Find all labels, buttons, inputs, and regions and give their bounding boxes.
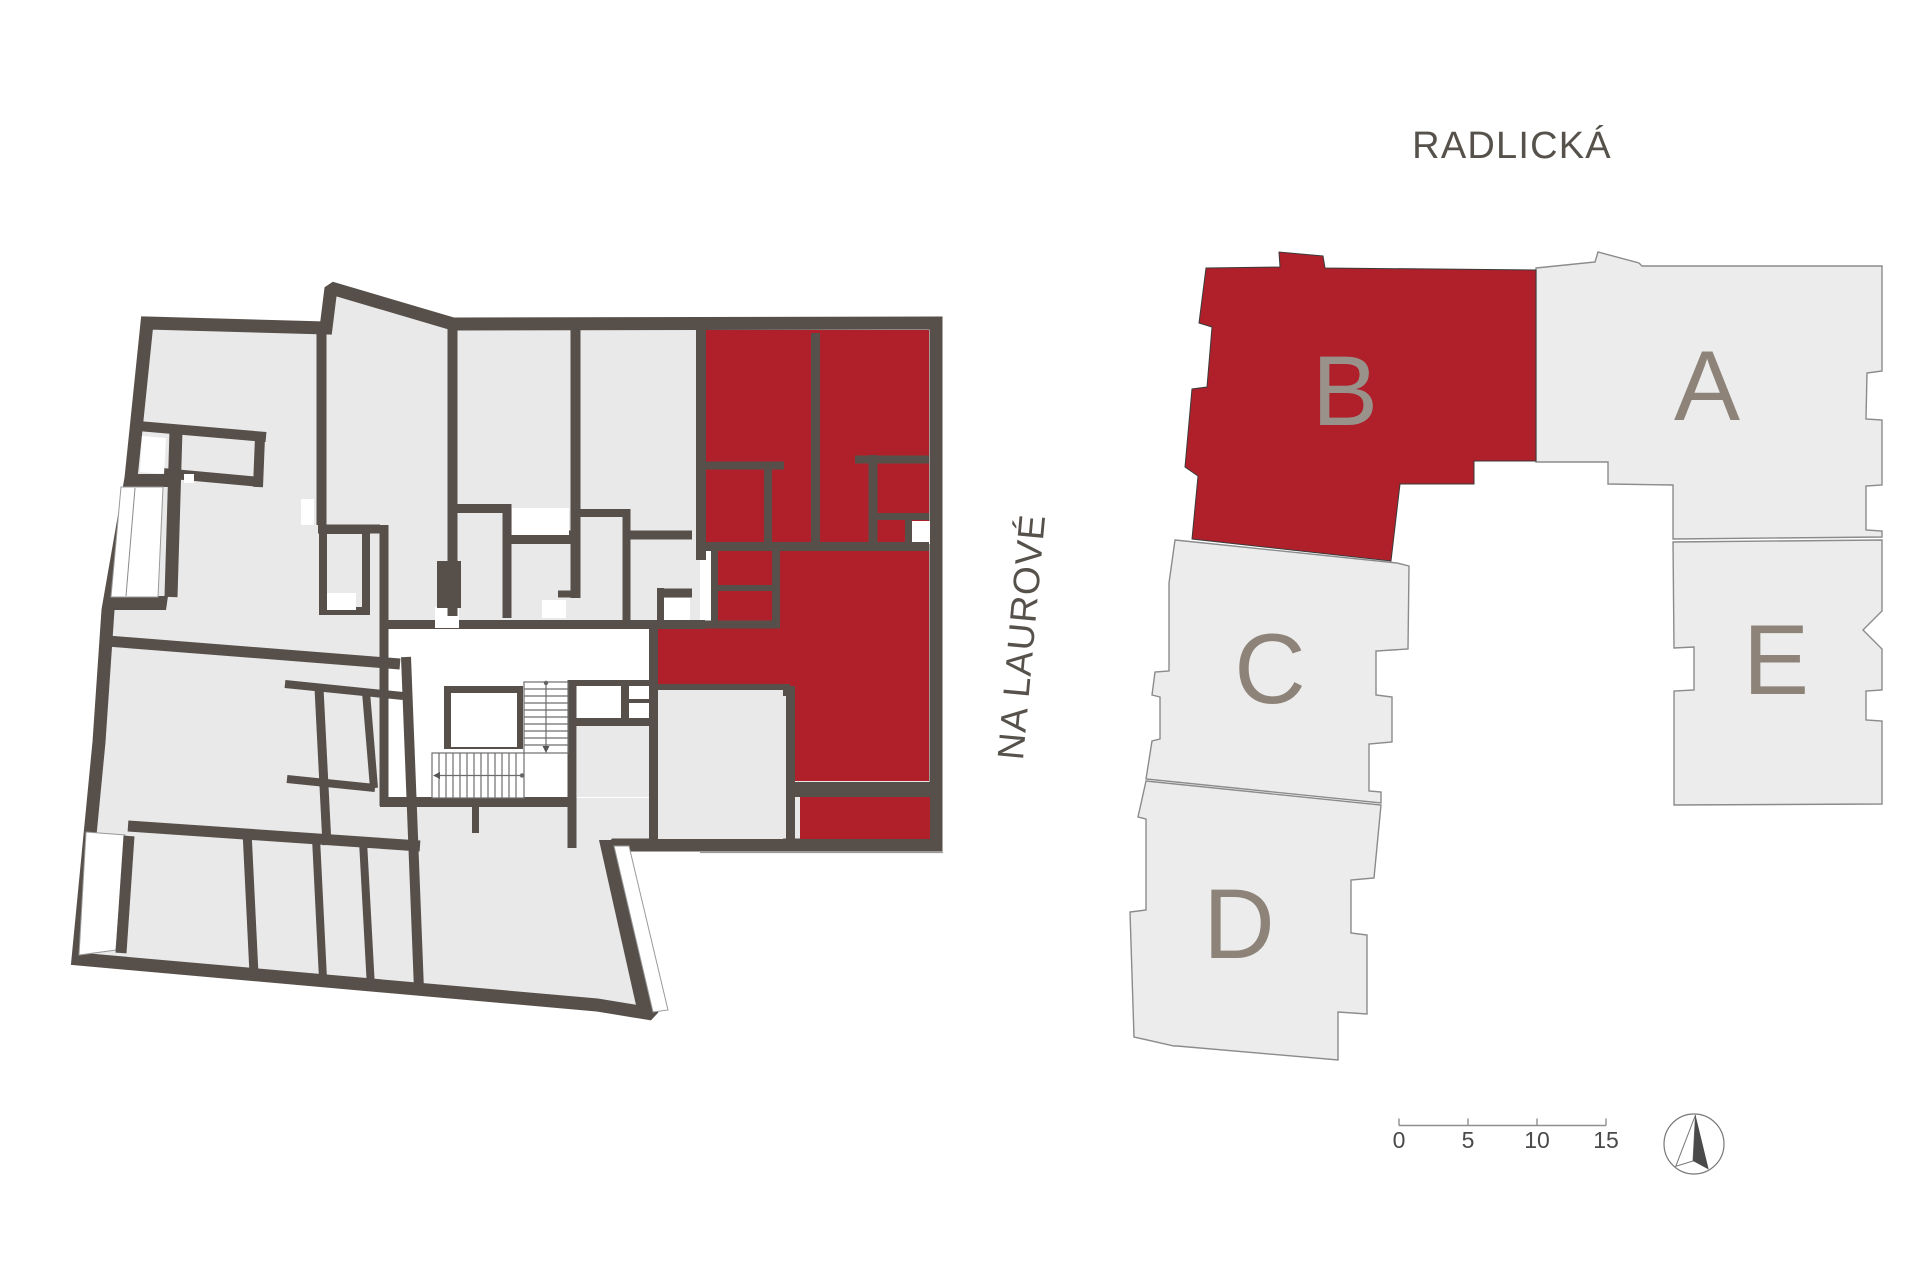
svg-text:E: E (1743, 604, 1809, 715)
svg-text:15: 15 (1593, 1127, 1619, 1153)
svg-text:0: 0 (1393, 1127, 1406, 1153)
svg-text:D: D (1203, 868, 1275, 979)
svg-text:10: 10 (1524, 1127, 1550, 1153)
svg-text:A: A (1674, 330, 1740, 441)
svg-text:RADLICKÁ: RADLICKÁ (1412, 124, 1612, 167)
svg-text:C: C (1234, 613, 1306, 724)
svg-text:5: 5 (1462, 1127, 1475, 1153)
svg-text:B: B (1312, 335, 1378, 446)
